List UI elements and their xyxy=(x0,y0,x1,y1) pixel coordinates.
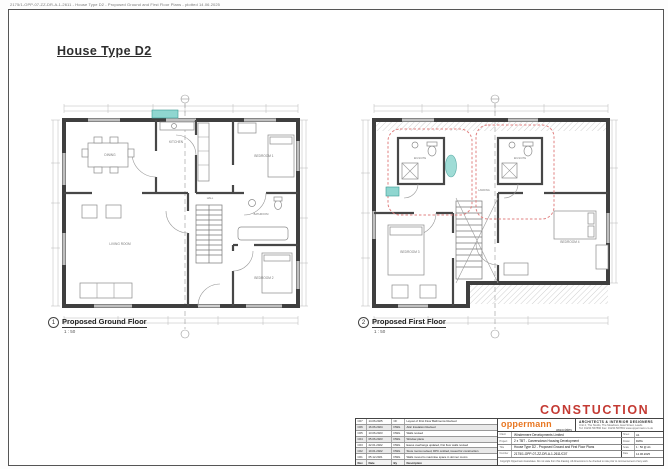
drawing-sheet: 2175/1-OPP-07-ZZ-DR-A-1-2611 - House Typ… xyxy=(0,0,668,469)
svg-text:HALL: HALL xyxy=(207,196,214,200)
first-floor-plan: BEDROOM 3 BEDROOM 4 EN-SUITE EN-SUITE LA… xyxy=(358,93,618,343)
svg-text:KITCHEN: KITCHEN xyxy=(169,140,184,144)
firm-details: ARCHITECTS & INTERIOR DESIGNERS Unit 4, … xyxy=(576,419,663,431)
page-title: House Type D2 xyxy=(57,44,152,58)
ground-floor-plan: DINING KITCHEN BEDROOM 1 BATHROOM BEDROO… xyxy=(48,93,308,343)
room-labels: DINING KITCHEN BEDROOM 1 BATHROOM BEDROO… xyxy=(104,140,273,280)
ground-floor-caption: 1 Proposed Ground Floor 1 : 50 xyxy=(48,317,147,334)
first-floor-scale: 1 : 50 xyxy=(374,329,446,334)
svg-text:DINING: DINING xyxy=(104,153,116,157)
highlight-tag xyxy=(152,110,178,118)
disclaimer-text: Copyright Oppermann Associates. Do not s… xyxy=(498,458,663,465)
highlight-element-centre xyxy=(446,155,457,177)
highlight-element-left xyxy=(386,187,399,196)
drawing-number-1: 1 xyxy=(48,317,59,328)
svg-text:BEDROOM 3: BEDROOM 3 xyxy=(400,250,419,254)
drawing-number-value: 2175/1-OPP-07-ZZ-DR-A-1-2611/C07 xyxy=(512,451,621,456)
svg-text:LANDING: LANDING xyxy=(478,188,490,192)
first-floor-caption: 2 Proposed First Floor 1 : 50 xyxy=(358,317,446,334)
firm-contact: Tel: 01234 567890 Fax: 01234 567891 www.… xyxy=(579,427,661,430)
construction-stamp: CONSTUCTION xyxy=(540,403,649,417)
print-header-text: 2175/1-OPP-07-ZZ-DR-A-1-2611 - House Typ… xyxy=(10,2,220,7)
svg-text:BATHROOM: BATHROOM xyxy=(254,212,269,216)
title-block-info: oppermann associates ARCHITECTS & INTERI… xyxy=(498,419,663,465)
svg-text:LIVING ROOM: LIVING ROOM xyxy=(109,242,131,246)
project-value: 2 x TBT - Carversdown Housing Developmen… xyxy=(512,438,621,443)
first-floor-caption-label: Proposed First Floor xyxy=(372,317,446,328)
drawing-number-2: 2 xyxy=(358,317,369,328)
ground-floor-caption-label: Proposed Ground Floor xyxy=(62,317,147,328)
client-value: Windermere Developments Limited xyxy=(512,432,621,437)
ground-floor-scale: 1 : 50 xyxy=(64,329,147,334)
eaves-hatch-top xyxy=(376,122,606,131)
svg-text:EN-SUITE: EN-SUITE xyxy=(414,156,426,160)
eaves-hatch-bottom xyxy=(470,285,608,304)
room-labels: BEDROOM 3 BEDROOM 4 EN-SUITE EN-SUITE LA… xyxy=(400,156,579,254)
svg-text:BEDROOM 4: BEDROOM 4 xyxy=(560,240,579,244)
revision-table: C07 14.06.2025 CF Layout of First Floor … xyxy=(356,419,498,465)
staircase xyxy=(196,205,222,263)
revision-header-row: Rev Date By Description xyxy=(356,459,497,465)
drawing-title-value: House Type D2 - Proposed Ground and Firs… xyxy=(512,445,621,450)
ensuite-fixtures xyxy=(402,142,533,179)
svg-text:EN-SUITE: EN-SUITE xyxy=(514,156,526,160)
firm-logo: oppermann associates xyxy=(498,419,576,431)
title-block: C07 14.06.2025 CF Layout of First Floor … xyxy=(355,418,664,466)
svg-text:BEDROOM 2: BEDROOM 2 xyxy=(254,276,273,280)
svg-text:BEDROOM 1: BEDROOM 1 xyxy=(254,154,273,158)
